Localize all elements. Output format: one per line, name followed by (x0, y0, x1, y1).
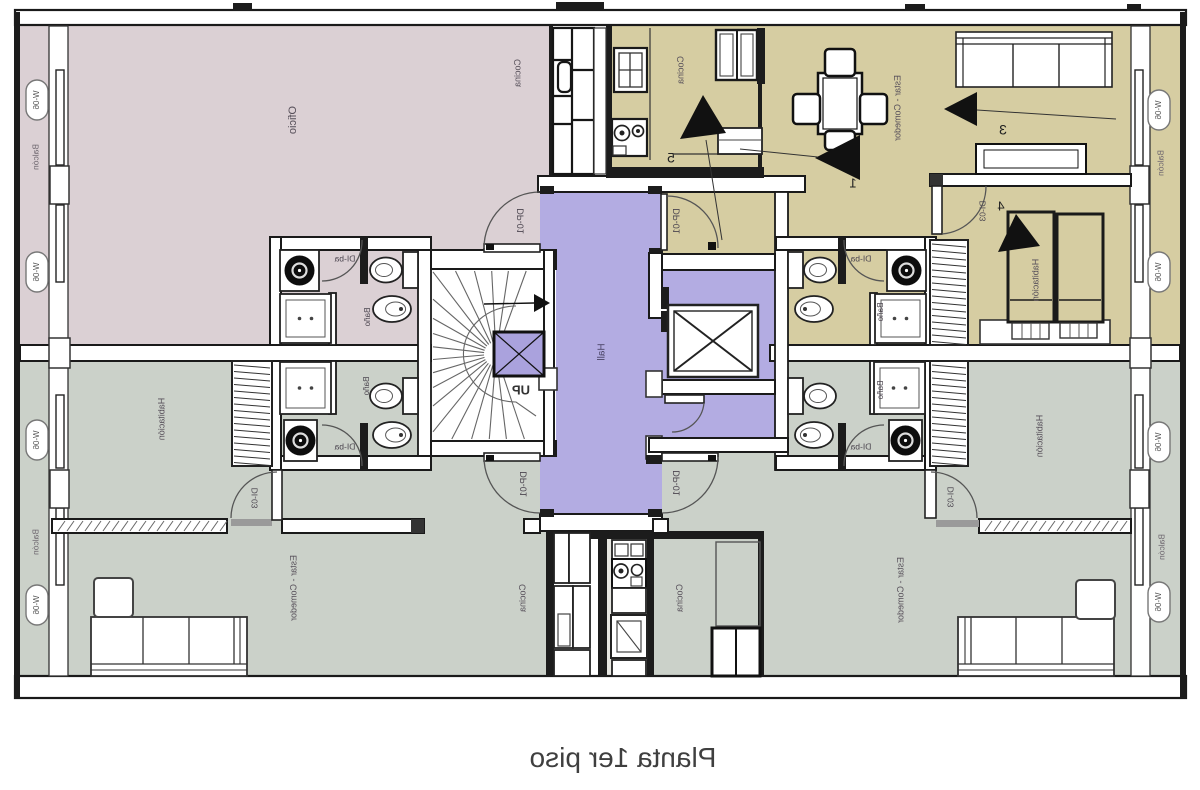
svg-text:DP-01: DP-01 (518, 471, 528, 497)
svg-text:Estar - Comedor: Estar - Comedor (288, 555, 298, 621)
svg-text:Habitación: Habitación (156, 398, 166, 441)
svg-text:DI-ba: DI-ba (850, 441, 871, 451)
svg-text:Cocina: Cocina (517, 584, 527, 612)
svg-text:4: 4 (997, 198, 1004, 213)
svg-text:Planta 1er piso: Planta 1er piso (530, 742, 717, 773)
svg-text:DI-ba: DI-ba (334, 253, 355, 263)
svg-text:W-06: W-06 (32, 431, 41, 451)
svg-text:Habitación: Habitación (1034, 415, 1044, 458)
svg-text:W-06: W-06 (32, 596, 41, 616)
svg-text:DP-01: DP-01 (515, 208, 525, 234)
svg-text:DI-03: DI-03 (945, 487, 955, 508)
svg-text:DP-01: DP-01 (671, 208, 681, 234)
svg-text:Cocina: Cocina (675, 56, 685, 84)
svg-text:W-06: W-06 (1154, 593, 1163, 613)
svg-text:Balcón: Balcón (1156, 534, 1166, 560)
svg-text:Cocina: Cocina (674, 584, 684, 612)
svg-text:DI-03: DI-03 (249, 488, 259, 509)
svg-text:Estar - Comedor: Estar - Comedor (895, 557, 905, 623)
svg-text:1: 1 (849, 175, 856, 190)
svg-text:DI-ba: DI-ba (334, 441, 355, 451)
svg-text:Baño: Baño (876, 381, 885, 400)
svg-text:W-06: W-06 (1154, 101, 1163, 121)
svg-text:W-06: W-06 (1154, 263, 1163, 283)
svg-text:Habitación: Habitación (1030, 259, 1040, 302)
svg-text:W-06: W-06 (32, 263, 41, 283)
svg-text:DI-ba: DI-ba (850, 253, 871, 263)
svg-text:Estar - Comedor: Estar - Comedor (892, 75, 902, 141)
svg-text:Oficio: Oficio (287, 106, 299, 134)
svg-text:Baño: Baño (363, 308, 372, 327)
svg-text:UP: UP (512, 382, 530, 397)
svg-text:3: 3 (999, 122, 1007, 138)
svg-text:W-06: W-06 (1154, 433, 1163, 453)
svg-text:DI-03: DI-03 (977, 201, 987, 222)
svg-text:Balcón: Balcón (30, 144, 40, 170)
svg-text:Balcón: Balcón (30, 529, 40, 555)
svg-text:DP-01: DP-01 (671, 470, 681, 496)
svg-text:5: 5 (667, 150, 675, 166)
svg-text:Hall: Hall (597, 343, 608, 360)
svg-text:W-06: W-06 (32, 91, 41, 111)
svg-text:Baño: Baño (876, 303, 885, 322)
svg-text:Baño: Baño (362, 377, 371, 396)
svg-text:Balcón: Balcón (1155, 150, 1165, 176)
svg-text:Cocina: Cocina (512, 59, 522, 87)
